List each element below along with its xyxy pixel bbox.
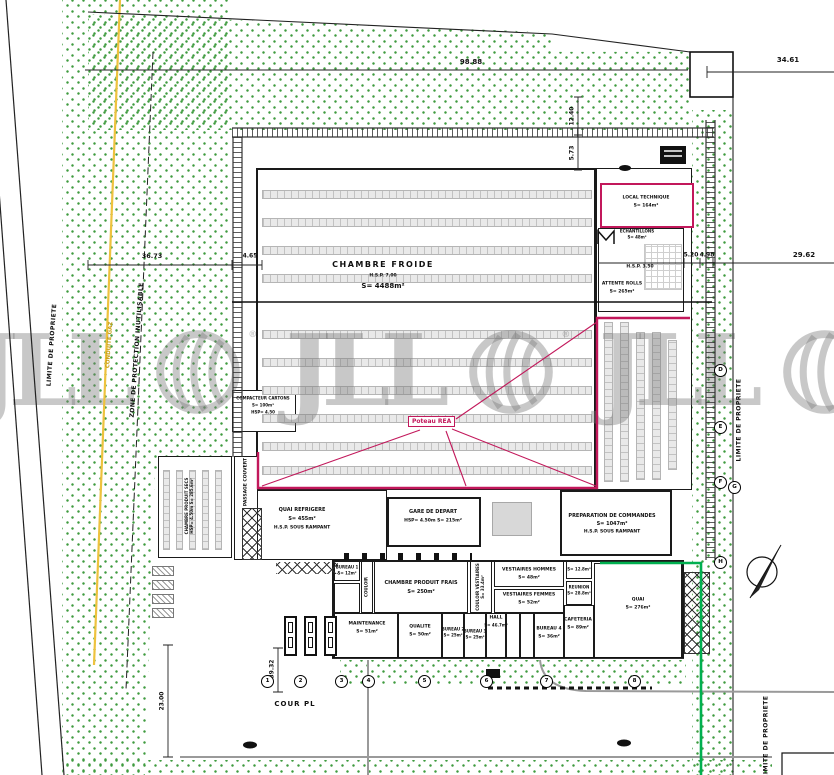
transformer-icon [660,146,686,164]
room-area: S= 46.7m² [484,624,507,629]
room-label-couloir: COULOIR [365,577,370,597]
grid-row-bubble: E [714,421,727,434]
gate-symbol-icon [598,231,614,244]
dim-5-73: 5.73 [568,146,575,161]
grid-row-bubble: G [728,481,741,494]
room-label-produit-frais: CHAMBRE PRODUIT FRAIS [384,580,457,586]
room-area: S= 48m² [627,236,646,241]
room-label-vestiaires-femmes: VESTIAIRES FEMMES [503,592,555,597]
limite-propriete-bottom: LIMITE DE PROPRIETE [762,696,769,775]
room-area: S= 89m² [567,625,589,630]
dim-36-73: 36.73 [142,253,163,261]
dim-34-61: 34.61 [777,56,799,64]
room-area: S= 250m² [407,589,434,595]
room-label-couloir-vestiaires: COULOIR VESTIAIRES S= 33.4m² [476,563,486,611]
plan-linework [0,0,834,775]
site-plan: JLL ® JLL ® JLL [0,0,834,775]
limite-propriete-right: LIMITE DE PROPRIETE [735,379,742,462]
red-outline [258,318,690,488]
grid-col-bubble: 1 [261,675,274,688]
room-label-gare-depart: GARE DE DEPART [409,509,457,515]
room-area: S= 4488m² [361,282,404,290]
room-area-12-8: S= 12.8m² [567,568,590,573]
grid-col-bubble: 8 [628,675,641,688]
dimension-lines [88,66,834,757]
grid-col-bubble: 7 [540,675,553,688]
room-label-bureau-4: BUREAU 4 [536,626,561,631]
dim-23-00: 23.00 [158,692,165,711]
hydrant-marker-icon [243,165,631,749]
room-hsp: H.S.P. 3.50 [626,264,653,269]
room-area: S= 25m² [443,634,462,639]
room-label-quai-refrigere: QUAI REFRIGERE [279,507,326,513]
grid-row-bubble: F [714,476,727,489]
room-dims: HSP= 4.50m S= 215m² [404,518,462,523]
property-lines-left [0,0,64,775]
room-label-hall: HALL [490,615,503,620]
corner-block [690,52,733,97]
dim-98-88: 98.88 [460,58,482,66]
room-area: S= 25m² [465,636,484,641]
room-area: S= 100m² [252,404,274,409]
dim-12-40: 12.40 [568,107,575,126]
room-label-vestiaires-hommes: VESTIAIRES HOMMES [502,567,556,572]
room-area: S= 36m² [538,634,560,639]
room-area: S= 51m² [356,629,378,634]
dim-4-65: 4.65 [243,252,258,259]
green-boundary-line [600,563,701,775]
room-area: S= 1047m² [597,521,628,527]
cour-label: COUR PL [274,700,315,708]
room-label-chambre-froide: CHAMBRE FROIDE [332,260,434,270]
room-area: S= 50m² [409,632,431,637]
room-label-local-technique: LOCAL TECHNIQUE [623,195,670,200]
grid-col-bubble: 2 [294,675,307,688]
room-label-compacteur: COMPACTEUR CARTONS [236,397,289,402]
room-label-maintenance: MAINTENANCE [349,621,386,626]
room-area: S= 28.8m² [567,592,590,597]
grid-row-bubble: H [714,556,727,569]
room-area: S= 52m² [518,600,540,605]
room-area: S= 164m² [634,203,659,208]
protection-zone-line [126,52,153,690]
room-label-produit-secs: CHAMBRE PRODUIT SECS HSP= 4.50m S= 285.6… [185,478,195,535]
grid-col-bubble: 6 [480,675,493,688]
poteau-rea-label: Poteau REA [408,416,455,427]
room-label-quai: QUAI [632,597,645,602]
room-area: S= 265m² [610,289,635,294]
compass-icon [747,545,781,598]
room-label-attente-rolls: ATTENTE ROLLS [602,281,642,286]
room-label-cafeteria: CAFETERIA [564,617,592,622]
room-label-passage-couvert: PASSAGE COUVERT [243,458,248,506]
room-label-preparation: PREPARATION DE COMMANDES [568,513,655,519]
room-hsp: H.S.P. 7.00 [369,273,396,278]
room-area: S= 48m² [518,575,540,580]
room-hsp: H.S.P. SOUS RAMPANT [584,529,640,534]
dim-29-62: 29.62 [793,251,815,259]
grid-row-bubble: D [714,364,727,377]
room-label-qualite: QUALITE [409,624,431,629]
room-area: S= 12m² [337,572,356,577]
room-area: S= 455m² [288,516,315,522]
room-hsp: HSP= 4.50 [251,411,275,416]
north-boundary [85,12,733,775]
grid-col-bubble: 4 [362,675,375,688]
room-hsp: H.S.P. SOUS RAMPANT [274,525,330,530]
grid-col-bubble: 5 [418,675,431,688]
bottom-right-block [782,753,834,775]
room-area: S= 276m² [626,605,651,610]
grid-col-bubble: 3 [335,675,348,688]
toothed-walls [232,120,715,560]
dim-5-20: 5.20 [684,251,699,258]
dim-4-98: 4.98 [700,251,715,258]
